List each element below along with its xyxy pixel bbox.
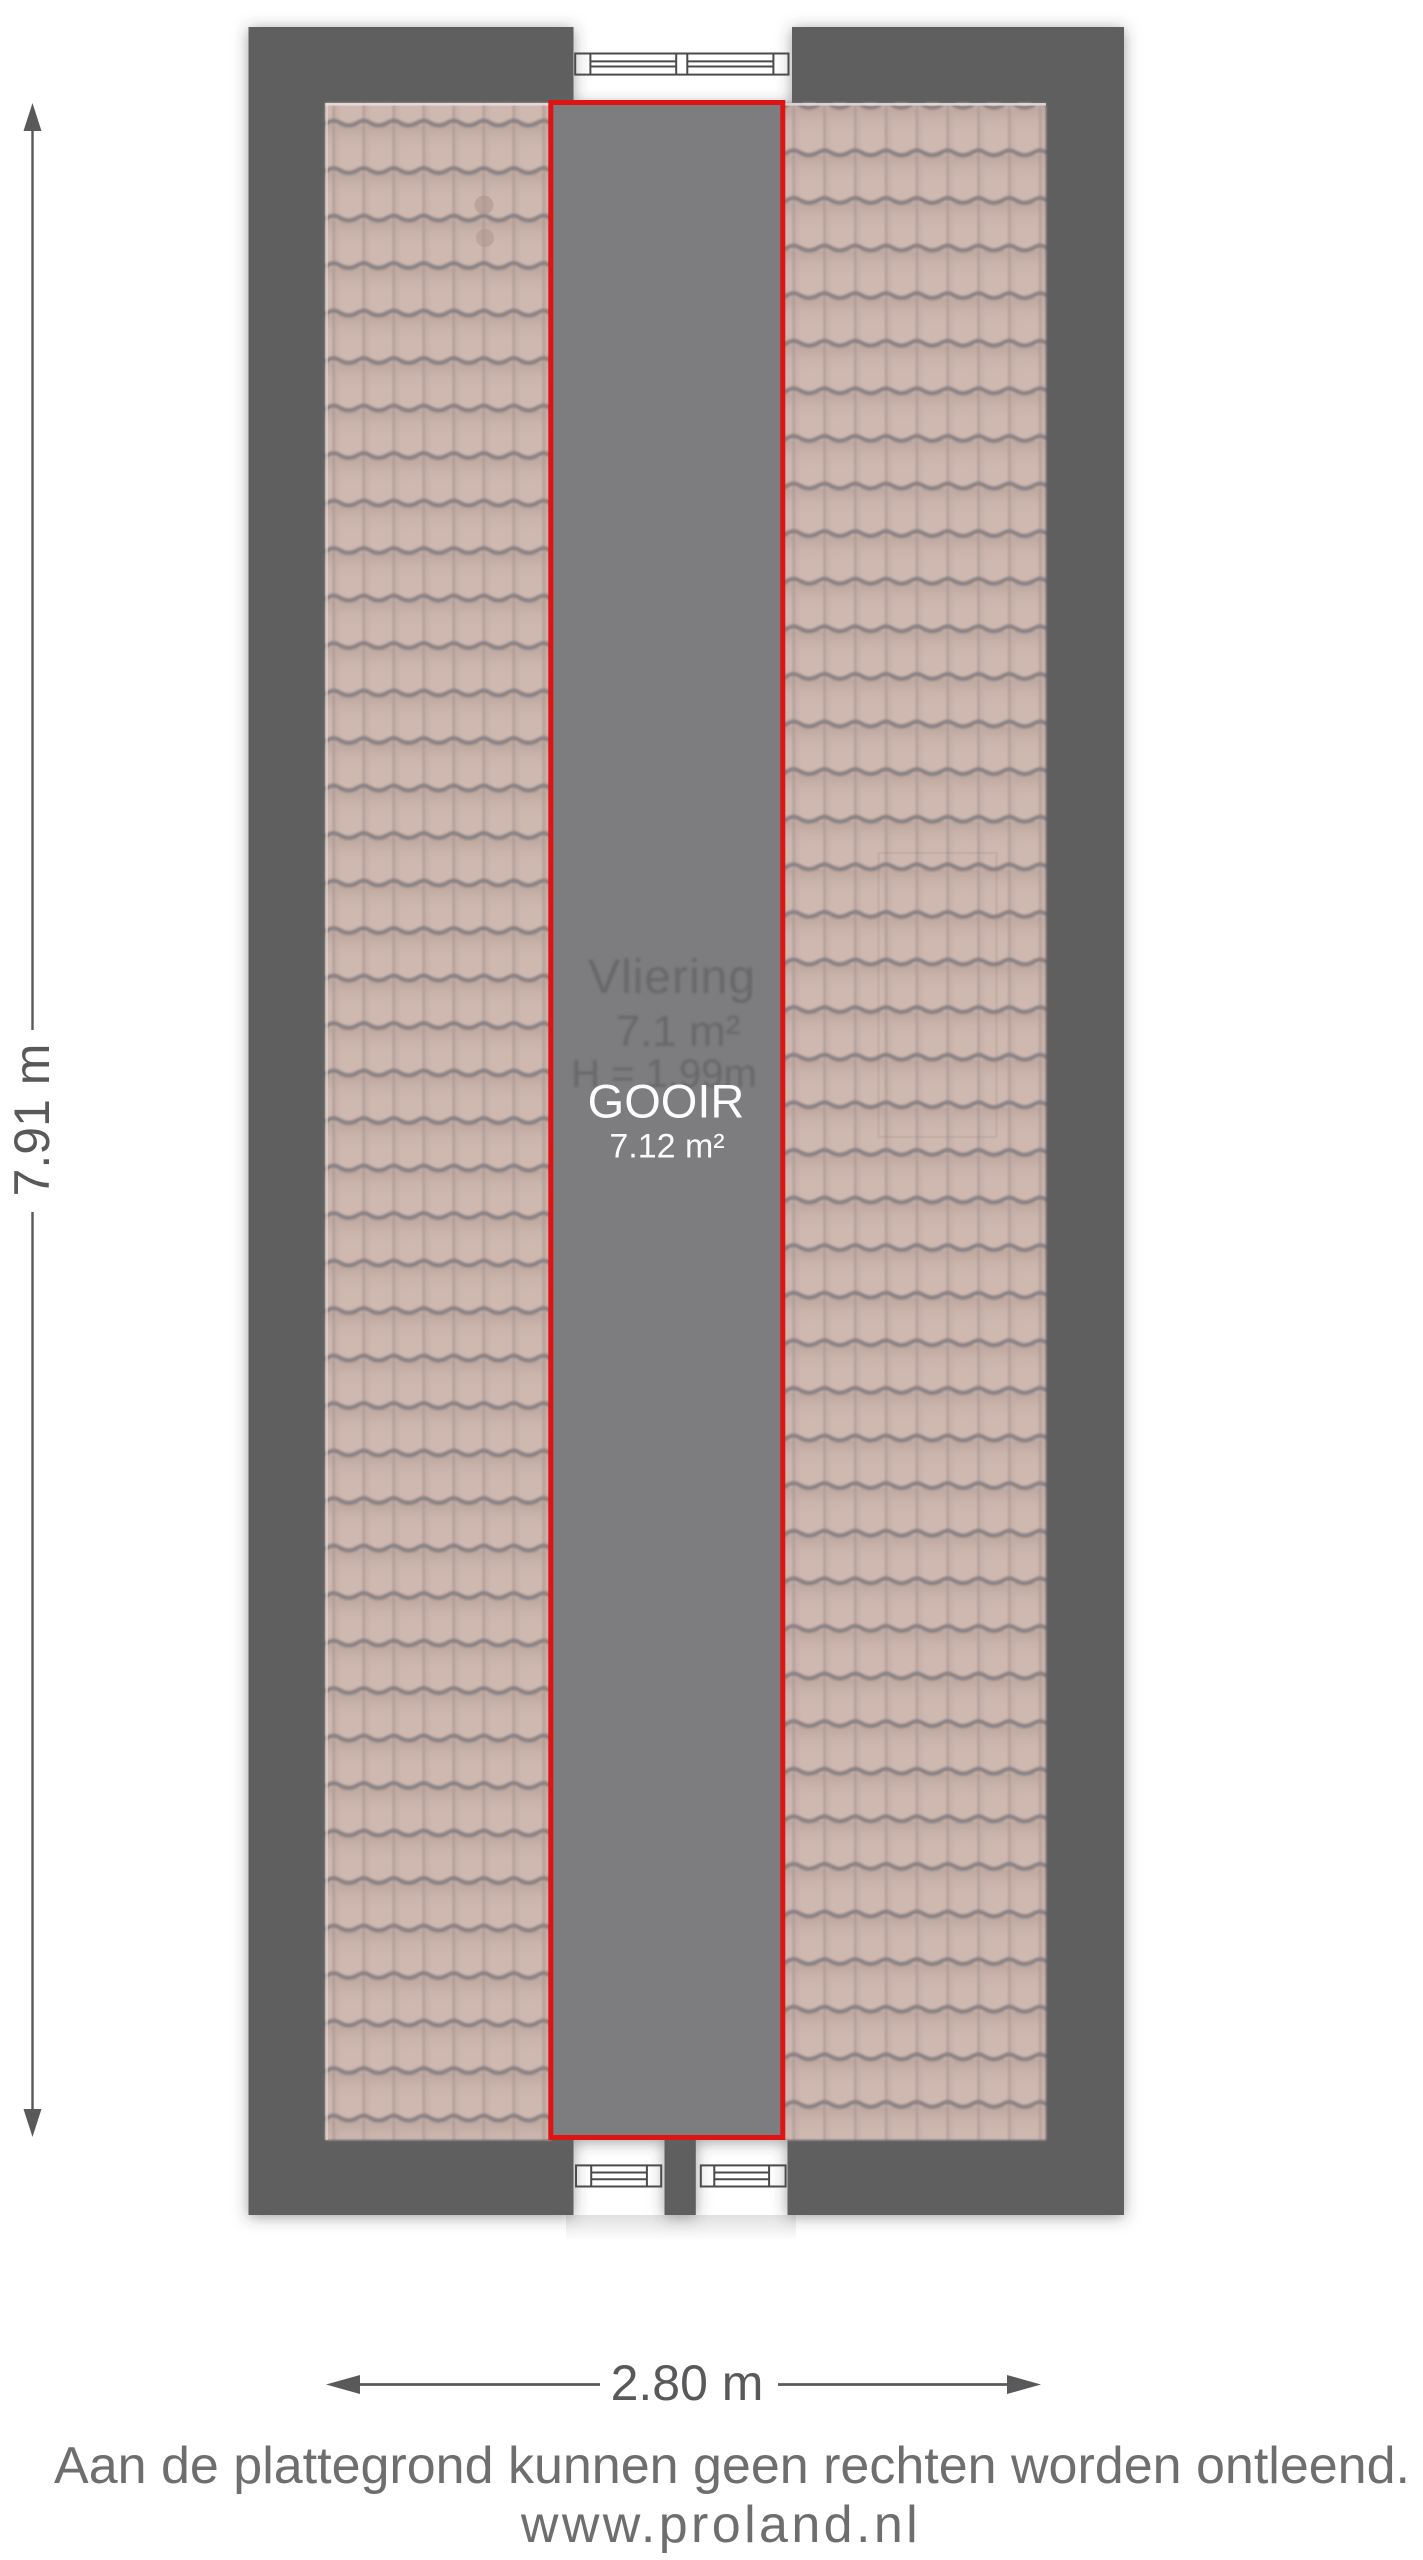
svg-text:Vliering: Vliering — [588, 951, 756, 1004]
svg-text:www.proland.nl: www.proland.nl — [520, 2496, 921, 2554]
svg-text:Aan de plattegrond kunnen geen: Aan de plattegrond kunnen geen rechten w… — [54, 2437, 1410, 2495]
svg-text:7.12 m²: 7.12 m² — [609, 1128, 724, 1166]
svg-text:7.91 m: 7.91 m — [4, 1044, 60, 1197]
svg-text:2.80 m: 2.80 m — [611, 2355, 764, 2411]
svg-text:7.1 m²: 7.1 m² — [616, 1007, 741, 1056]
svg-text:GOOIR: GOOIR — [588, 1075, 745, 1128]
